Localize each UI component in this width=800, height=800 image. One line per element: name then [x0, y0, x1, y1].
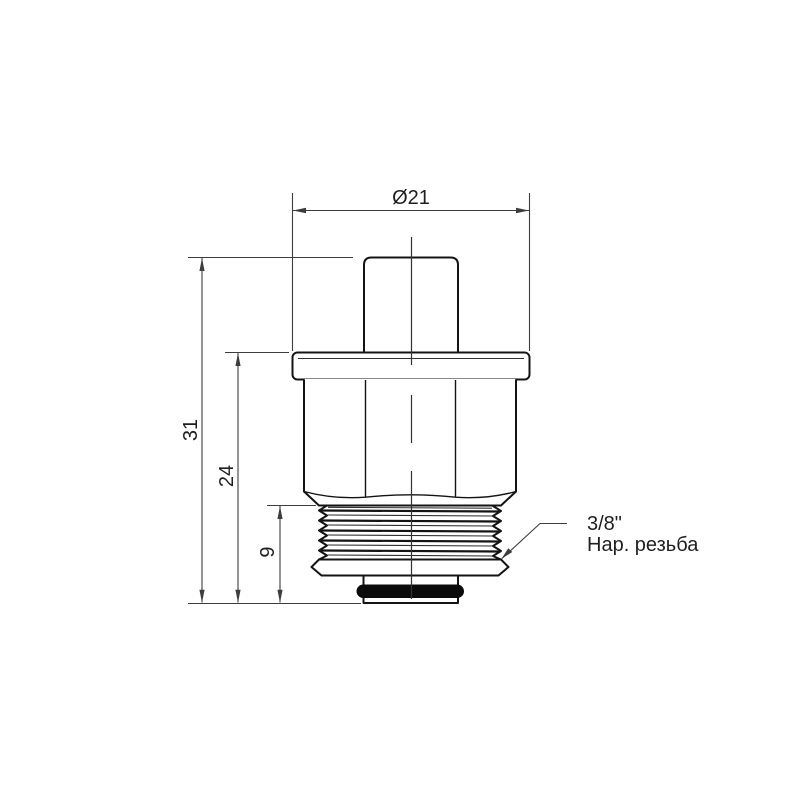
arrow-24-bottom [235, 590, 240, 603]
o-ring [357, 585, 465, 599]
technical-drawing: Ø21 31 24 9 [0, 0, 800, 800]
thread-collar [312, 560, 509, 576]
drawing-canvas: Ø21 31 24 9 [0, 0, 800, 800]
arrow-24-top [235, 353, 240, 366]
thread-section [319, 505, 501, 560]
hex-body [304, 379, 516, 506]
dim-diameter-label: Ø21 [392, 187, 430, 209]
leader-line [502, 524, 567, 559]
dimension-body-height: 24 [216, 353, 289, 603]
dim-body-label: 24 [216, 465, 238, 487]
dimension-thread-length: 9 [257, 506, 316, 603]
fitting-outline [293, 237, 530, 607]
arrow-diameter-left [293, 208, 306, 213]
arrow-9-bottom [277, 590, 282, 603]
thread-note-line2: Нар. резьба [587, 534, 699, 556]
thread-note: 3/8" Нар. резьба [502, 513, 700, 559]
dim-overall-label: 31 [180, 419, 202, 441]
dim-thread-label: 9 [257, 546, 279, 557]
arrow-9-top [277, 506, 282, 519]
arrow-31-top [199, 258, 204, 271]
arrow-31-bottom [199, 590, 204, 603]
thread-note-line1: 3/8" [587, 513, 622, 535]
arrow-diameter-right [516, 208, 529, 213]
